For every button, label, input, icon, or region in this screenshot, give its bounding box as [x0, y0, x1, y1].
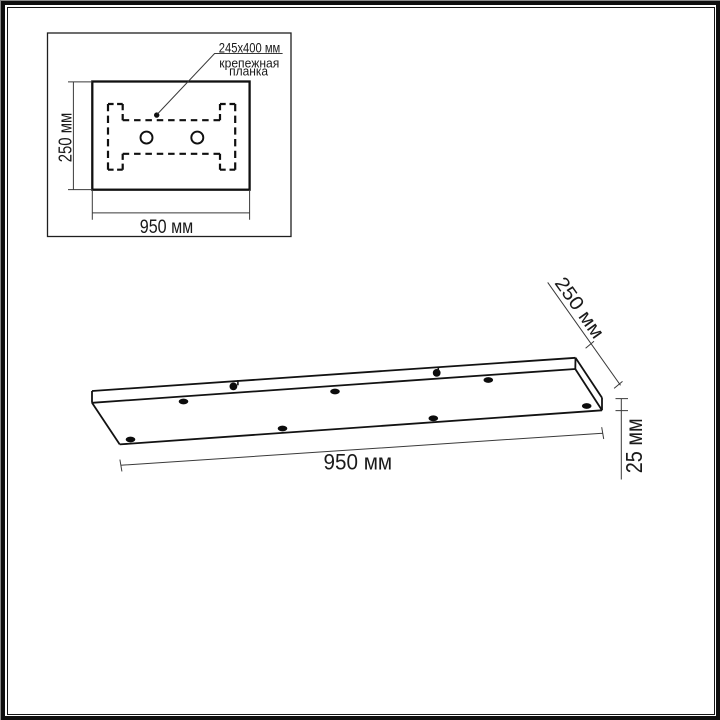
svg-text:950 мм: 950 мм: [324, 449, 393, 474]
svg-text:245x400 мм: 245x400 мм: [219, 40, 281, 56]
svg-text:250 мм: 250 мм: [550, 273, 608, 343]
svg-text:25 мм: 25 мм: [621, 418, 647, 473]
svg-text:950 мм: 950 мм: [140, 217, 194, 238]
svg-text:планка: планка: [229, 63, 269, 78]
svg-text:250 мм: 250 мм: [56, 113, 76, 163]
